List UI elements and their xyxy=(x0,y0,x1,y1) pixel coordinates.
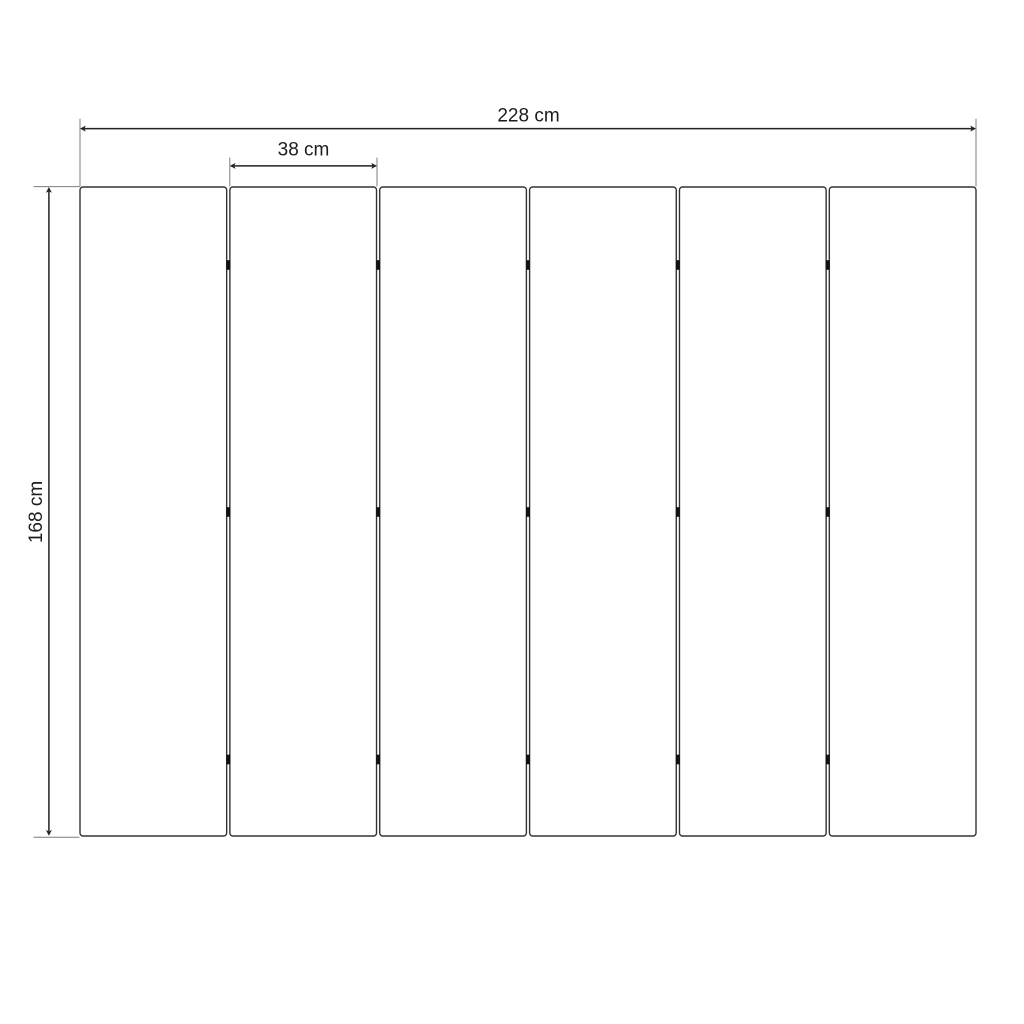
svg-text:38 cm: 38 cm xyxy=(278,140,330,161)
svg-text:168 cm: 168 cm xyxy=(26,481,47,543)
svg-text:228 cm: 228 cm xyxy=(497,105,559,126)
